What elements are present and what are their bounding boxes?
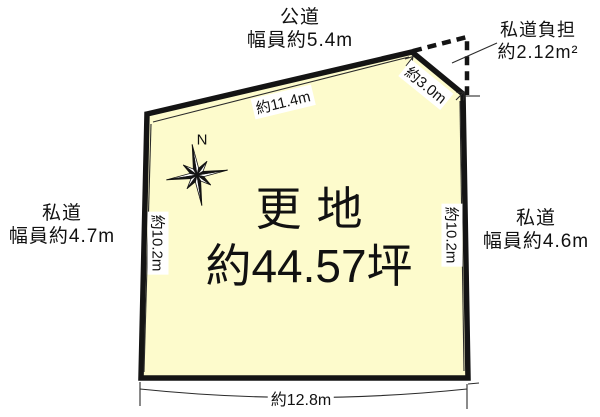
site-status: 更地 <box>205 181 412 238</box>
public-road-width: 幅員約5.4m <box>247 29 353 52</box>
right-road-name: 私道 <box>483 207 589 230</box>
label-public-road-top: 公道 幅員約5.4m <box>247 6 353 52</box>
site-label: 更地 約44.57坪 <box>205 181 412 295</box>
label-private-road-burden: 私道負担 約2.12m² <box>497 19 578 63</box>
right-road-width: 幅員約4.6m <box>483 230 589 253</box>
label-private-road-right: 私道 幅員約4.6m <box>483 207 589 253</box>
burden-name: 私道負担 <box>497 19 578 41</box>
left-road-name: 私道 <box>9 202 115 225</box>
site-area: 約44.57坪 <box>205 238 412 295</box>
north-label: N <box>197 132 208 149</box>
burden-leader-line <box>452 43 497 63</box>
dimension-bottom: 約12.8m <box>268 386 334 410</box>
dim-tick-bottom-right <box>468 383 479 384</box>
left-road-width: 幅員約4.7m <box>9 225 115 248</box>
label-private-road-left: 私道 幅員約4.7m <box>9 202 115 248</box>
public-road-name: 公道 <box>247 6 353 29</box>
burden-area: 約2.12m² <box>497 41 578 63</box>
dimension-left: 約10.2m <box>148 212 169 275</box>
dimension-right: 約10.2m <box>442 204 463 267</box>
land-plot-diagram: 公道 幅員約5.4m 私道負担 約2.12m² 私道 幅員約4.7m 私道 幅員… <box>0 0 600 417</box>
